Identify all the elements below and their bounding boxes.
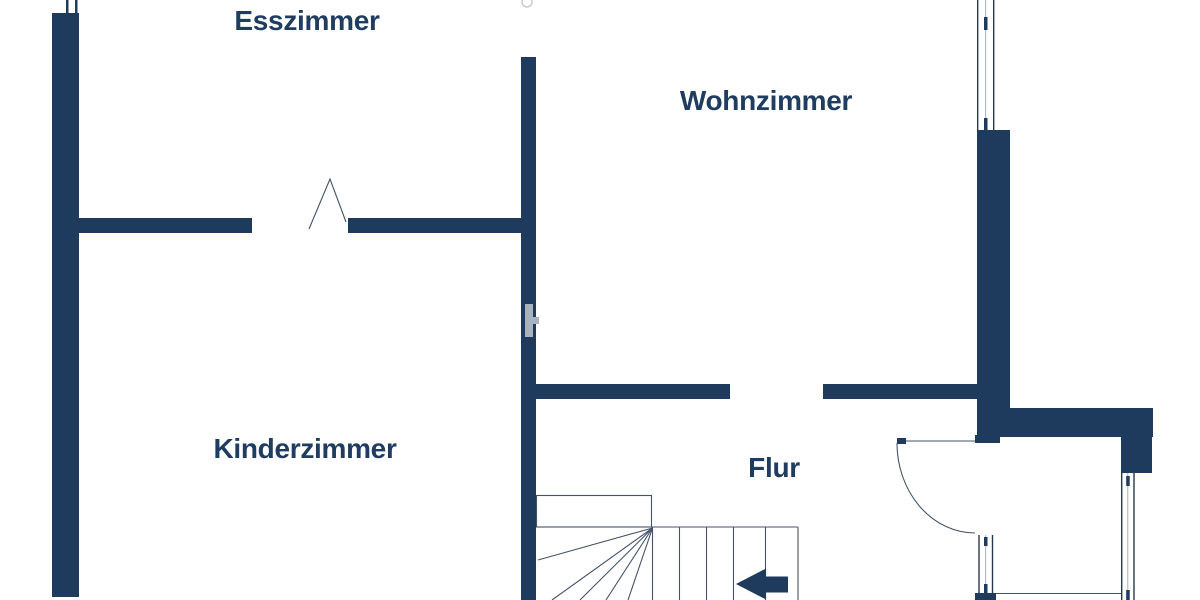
window-tick bbox=[984, 584, 988, 593]
window-tick bbox=[1126, 590, 1130, 600]
watermark-letter-h bbox=[525, 304, 539, 337]
wall-flur-top-left bbox=[536, 384, 730, 399]
room-label-wohnzimmer: Wohnzimmer bbox=[680, 85, 852, 117]
wall-bottom-block bbox=[975, 593, 996, 600]
stairs-winder-3 bbox=[580, 528, 653, 600]
walls bbox=[52, 0, 1153, 600]
floor-plan-drawing bbox=[0, 0, 1200, 600]
room-label-esszimmer: Esszimmer bbox=[234, 5, 379, 37]
wall-right-exterior-vertical bbox=[977, 130, 1010, 437]
window-tick bbox=[984, 17, 988, 30]
window-tick bbox=[984, 537, 988, 546]
wall-divider-esszimmer-right bbox=[348, 218, 521, 233]
watermark-h-bar bbox=[533, 317, 539, 324]
window-tick bbox=[1126, 476, 1130, 486]
wall-left-top-frame-line-1 bbox=[66, 0, 69, 14]
door-hinge-tick bbox=[897, 438, 906, 444]
window-tick bbox=[984, 118, 988, 130]
door-jamb-right bbox=[975, 435, 1000, 443]
wall-left-exterior bbox=[52, 13, 79, 597]
watermark-h-stem bbox=[525, 304, 533, 337]
wall-right-block bbox=[1121, 437, 1152, 473]
stairs-winder-5 bbox=[628, 528, 653, 600]
room-label-kinderzimmer: Kinderzimmer bbox=[213, 433, 396, 465]
wall-divider-esszimmer-left bbox=[79, 218, 252, 233]
room-label-flur: Flur bbox=[748, 452, 800, 484]
wall-left-top-frame-line-2 bbox=[75, 0, 78, 14]
wall-right-beam bbox=[1008, 408, 1153, 437]
stairs-winder-2 bbox=[552, 528, 653, 600]
door-arc-flur bbox=[897, 443, 975, 533]
stairs-landing bbox=[537, 496, 652, 528]
stairs-direction-arrow-icon bbox=[736, 569, 788, 600]
wall-flur-top-right bbox=[823, 384, 977, 399]
door-swing-esszimmer bbox=[309, 179, 346, 229]
floor-plan: Esszimmer Wohnzimmer Kinderzimmer Flur bbox=[0, 0, 1200, 600]
watermark-circle-top bbox=[522, 0, 532, 7]
